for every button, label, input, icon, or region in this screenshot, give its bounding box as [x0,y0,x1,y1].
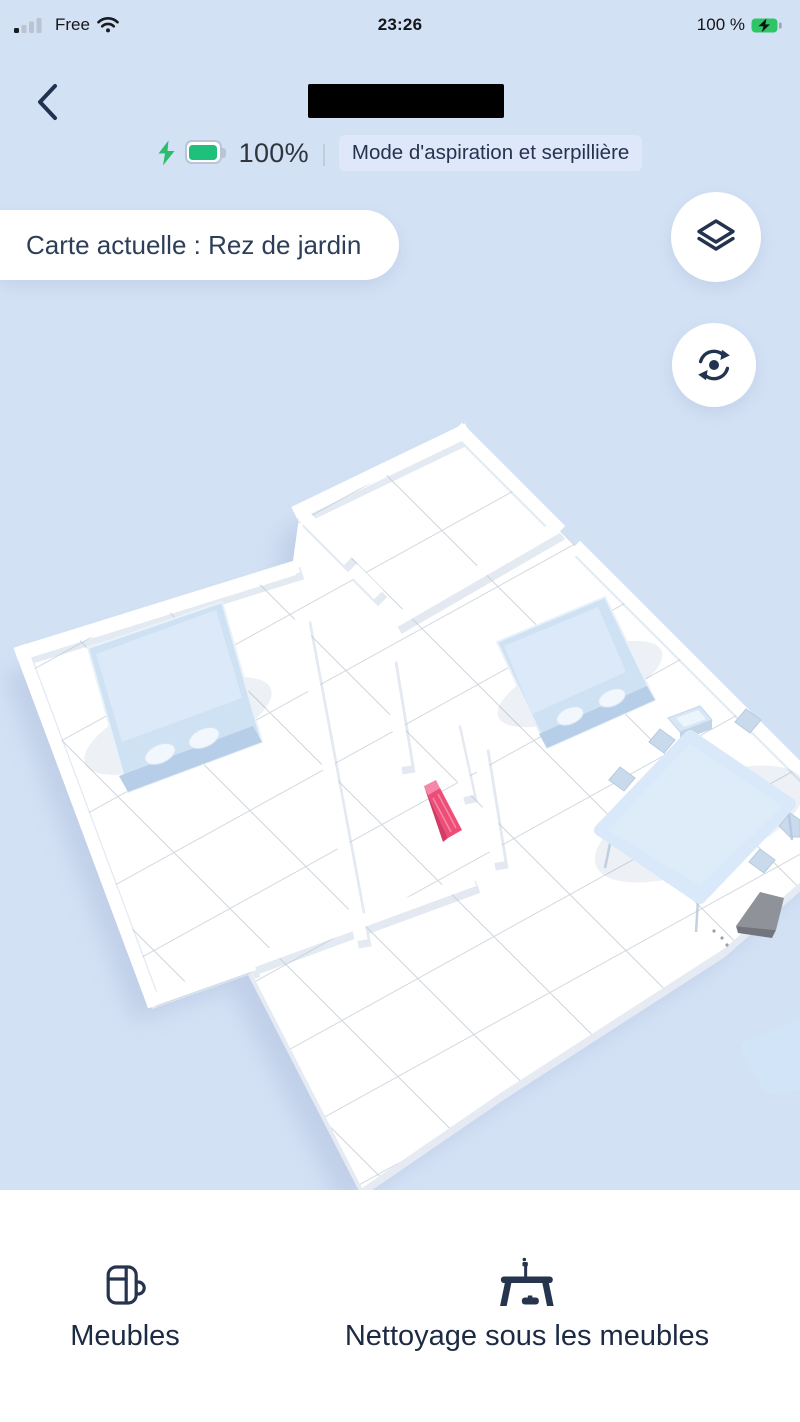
layers-icon [694,217,738,257]
battery-level-icon [185,140,229,166]
rug-icon [748,1026,800,1088]
charging-bolt-icon [158,140,175,166]
map-area: Carte actuelle : Rez de jardin [0,172,800,1190]
furniture-icon [99,1260,151,1312]
back-button[interactable] [30,80,70,124]
under-furniture-cleaning-label: Nettoyage sous les meubles [345,1320,709,1353]
under-furniture-cleaning-button[interactable]: Nettoyage sous les meubles [345,1256,709,1353]
header [0,44,800,120]
furniture-button[interactable]: Meubles [70,1256,180,1353]
bottom-action-bar: Meubles Nettoyage sous les meubles [0,1190,800,1422]
map-layers-button[interactable] [671,192,761,282]
status-time: 23:26 [0,15,800,35]
current-map-pill: Carte actuelle : Rez de jardin [0,210,399,280]
device-name-redacted [308,84,504,118]
status-bar: Free 23:26 100 % [0,0,800,44]
rotate-icon [693,344,735,386]
floor-plan-3d-map[interactable] [0,274,800,1190]
device-status-row: 100% | Mode d'aspiration et serpillière [0,134,800,172]
battery-level-label: 100% [239,138,309,169]
map-rotate-button[interactable] [672,323,756,407]
under-furniture-cleaning-icon [495,1256,559,1312]
cleaning-mode-badge: Mode d'aspiration et serpillière [339,135,642,171]
chevron-left-icon [30,80,66,124]
divider: | [321,140,327,167]
furniture-button-label: Meubles [70,1320,180,1353]
